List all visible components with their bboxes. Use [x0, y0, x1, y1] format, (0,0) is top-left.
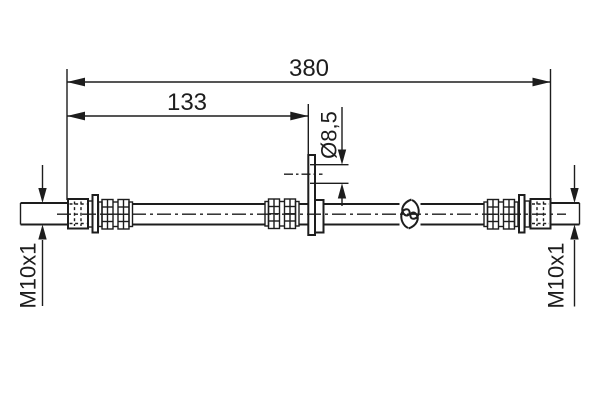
right-washer	[519, 195, 525, 233]
left-thread-callout: M10x1	[16, 165, 47, 309]
hose-assembly	[21, 155, 580, 235]
hose-break-symbol	[401, 200, 418, 229]
right-thread-label: M10x1	[544, 242, 569, 308]
left-thread-label: M10x1	[16, 242, 41, 308]
dimension-end-to-bracket: 133	[67, 89, 308, 155]
drawing-canvas: 380 133 Ø8,5 M10x1 M10x1	[0, 0, 600, 400]
bracket-hole-diameter-label: Ø8,5	[317, 111, 342, 159]
bracket-sleeve	[315, 200, 324, 233]
brake-hose-drawing: 380 133 Ø8,5 M10x1 M10x1	[0, 0, 600, 400]
dimension-bracket-hole: Ø8,5	[317, 107, 347, 206]
end-to-bracket-label: 133	[167, 89, 207, 116]
overall-length-label: 380	[289, 55, 329, 82]
right-thread-callout: M10x1	[544, 165, 579, 309]
